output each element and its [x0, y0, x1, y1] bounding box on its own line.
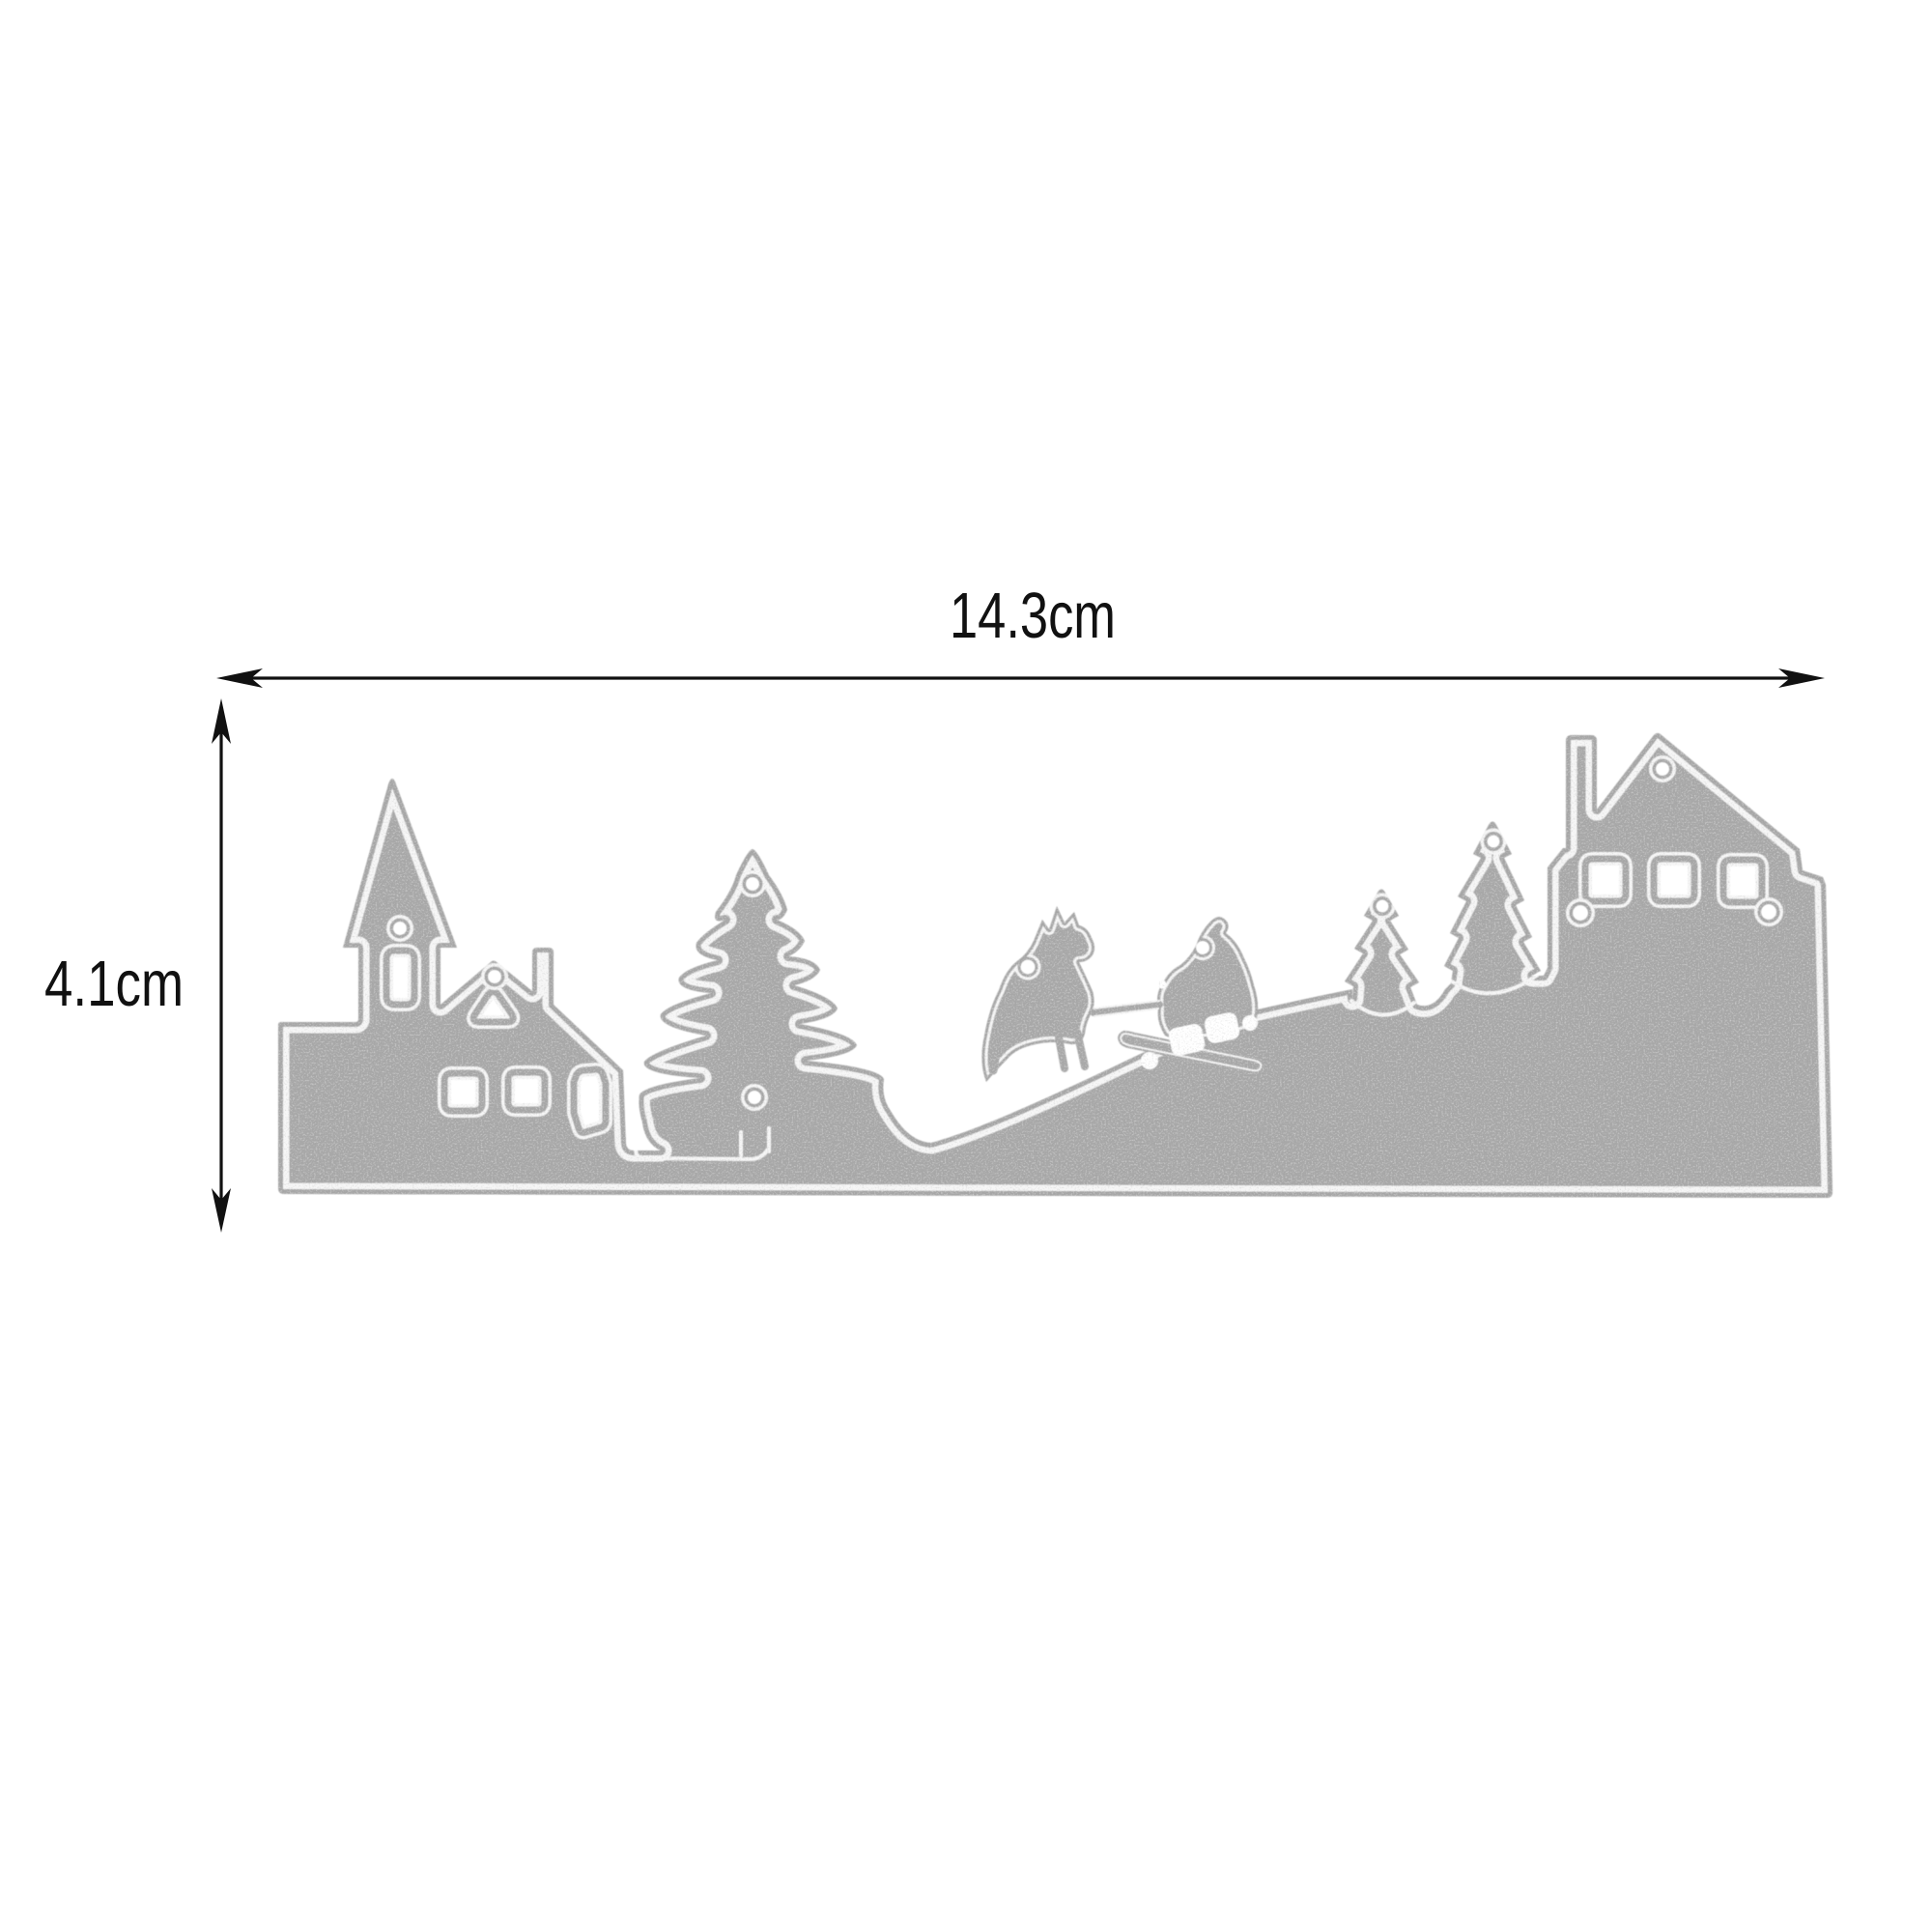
svg-text:4.1cm: 4.1cm — [44, 948, 184, 1020]
svg-text:14.3cm: 14.3cm — [950, 580, 1116, 652]
